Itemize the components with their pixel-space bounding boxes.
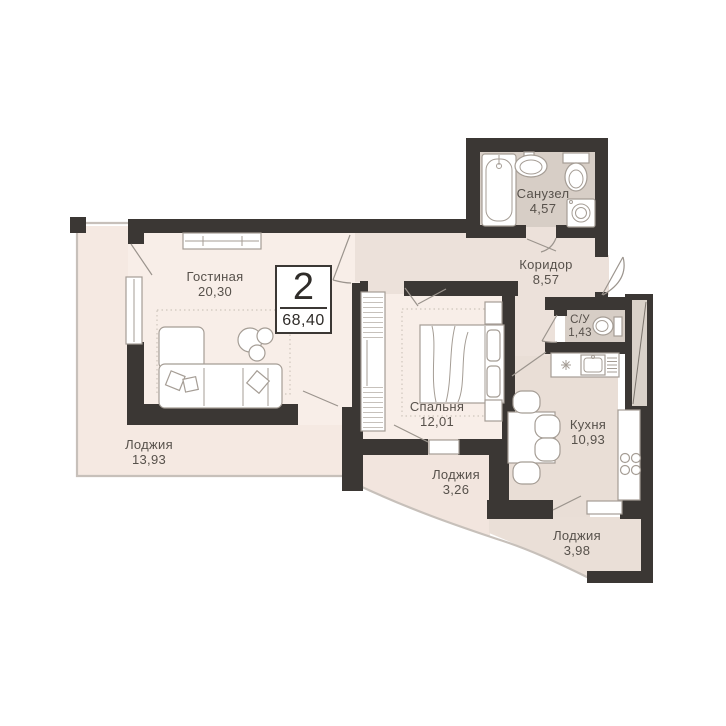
room-area: 13,93	[125, 452, 173, 467]
floor-plan: Гостиная 20,30 Лоджия 13,93 Спальня 12,0…	[0, 0, 726, 726]
hob-symbol	[561, 360, 571, 370]
room-label-loggia-mid: Лоджия 3,26	[432, 467, 480, 497]
room-area: 1,43	[568, 327, 592, 340]
wardrobe	[361, 292, 385, 431]
room-label-living: Гостиная 20,30	[187, 269, 244, 299]
bedroom-loggia-doorsill	[429, 440, 459, 454]
floor-plan-canvas	[0, 0, 726, 726]
total-area: 68,40	[277, 310, 330, 332]
room-name: Гостиная	[187, 269, 244, 284]
room-name: Лоджия	[553, 528, 601, 543]
room-name: Санузел	[517, 186, 570, 201]
room-label-bathroom: Санузел 4,57	[517, 186, 570, 216]
room-area: 4,57	[517, 201, 570, 216]
room-name: Лоджия	[125, 437, 173, 452]
room-label-corridor: Коридор 8,57	[519, 257, 572, 287]
wc-toilet	[593, 317, 622, 336]
kitchen-counter	[551, 353, 619, 377]
room-area: 12,01	[410, 414, 464, 429]
kitchen-sink	[581, 355, 605, 375]
room-area: 3,98	[553, 543, 601, 558]
room-label-kitchen: Кухня 10,93	[570, 417, 606, 447]
rooms-count: 2	[277, 267, 330, 306]
room-name: Кухня	[570, 417, 606, 432]
room-name: Лоджия	[432, 467, 480, 482]
room-name: Спальня	[410, 399, 464, 414]
room-area: 10,93	[570, 432, 606, 447]
living-loggia-window	[126, 277, 142, 344]
room-name: С/У	[568, 314, 592, 327]
vent-shaft	[632, 300, 647, 406]
apartment-type-badge: 2 68,40	[275, 265, 332, 334]
room-area: 20,30	[187, 284, 244, 299]
room-label-wc: С/У 1,43	[568, 314, 592, 339]
room-area: 3,26	[432, 482, 480, 497]
room-label-bedroom: Спальня 12,01	[410, 399, 464, 429]
living-radiator	[183, 233, 261, 249]
room-area: 8,57	[519, 272, 572, 287]
kitchen-loggia-window	[587, 501, 622, 514]
bed	[420, 325, 504, 403]
room-label-loggia-small: Лоджия 3,98	[553, 528, 601, 558]
bathtub	[482, 154, 516, 226]
room-name: Коридор	[519, 257, 572, 272]
room-label-loggia-large: Лоджия 13,93	[125, 437, 173, 467]
washing-machine	[567, 199, 595, 227]
